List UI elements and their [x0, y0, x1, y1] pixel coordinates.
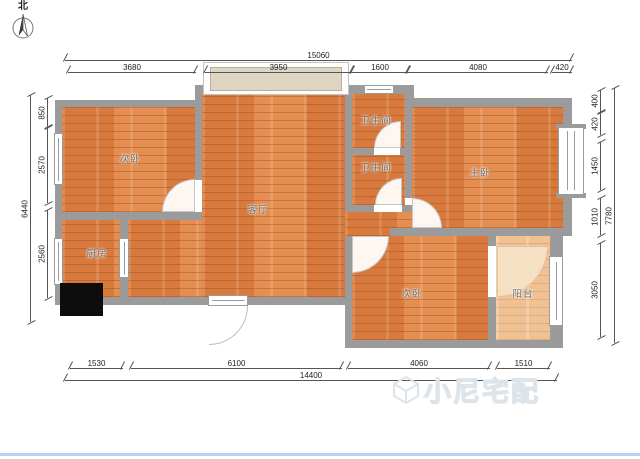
dim-top-seg-3: 1600: [352, 72, 408, 73]
bottom-divider: [0, 453, 640, 456]
dim-right-seg-1: 400: [600, 90, 601, 112]
dim-right-seg-3: 1450: [600, 142, 601, 190]
dim-left-seg-2: 2570: [47, 127, 48, 203]
kitchen-sliding-door: [119, 238, 129, 278]
wall-bath-living-divider: [345, 92, 352, 212]
window-kitchen-left: [54, 238, 63, 285]
entry-door-leaf: [208, 295, 248, 306]
window-bedroom-left: [54, 133, 63, 185]
wall-bath2-bottom-left: [352, 205, 374, 212]
compass-icon: [10, 12, 36, 40]
room-label-living-room: 客厅: [247, 202, 268, 216]
bay-window-master-right: [558, 127, 584, 195]
window-bathroom-top: [364, 85, 394, 94]
wall-master-bottom: [390, 228, 572, 236]
dim-top-total: 15060: [65, 60, 572, 61]
compass: 北: [8, 2, 38, 45]
wall-bath2-bottom-right: [402, 205, 412, 212]
dim-top-seg-4: 4080: [408, 72, 548, 73]
dim-left-total: 6440: [30, 95, 31, 322]
wall-bottom-right: [345, 340, 563, 348]
watermark-text: 小尼宅配: [424, 370, 540, 409]
room-label-master-bedroom: 主卧: [469, 165, 490, 179]
floor-dining: [128, 220, 202, 297]
north-label: 北: [8, 2, 38, 12]
room-label-kitchen: 厨房: [86, 246, 107, 260]
dim-right-total: 7780: [614, 88, 615, 343]
room-label-balcony: 阳台: [512, 286, 533, 300]
watermark: 小尼宅配: [392, 370, 540, 409]
dim-left-seg-1: 850: [47, 98, 48, 127]
wall-topleft-top: [55, 100, 195, 107]
entry-door-swing: [209, 306, 248, 345]
floor-living-room: [202, 92, 345, 297]
room-label-bathroom-top: 卫生间: [360, 113, 392, 127]
dim-left-seg-3: 2560: [47, 210, 48, 298]
dim-top-seg-2: 3950: [205, 72, 352, 73]
wall-bath-right: [405, 92, 412, 198]
watermark-cube-icon: [392, 375, 420, 405]
dim-right-seg-2: 420: [600, 112, 601, 135]
room-label-bedroom-bottom: 次卧: [401, 286, 422, 300]
dim-bottom-seg-3: 4060: [348, 368, 490, 369]
dim-bottom-seg-2: 6100: [131, 368, 342, 369]
floor-plan-page: 北: [0, 0, 640, 459]
dim-right-seg-4: 1010: [600, 198, 601, 235]
wall-topleft-right: [195, 107, 202, 180]
wall-topleft-bottom: [55, 212, 202, 220]
dim-bottom-seg-1: 1530: [70, 368, 123, 369]
dim-bottom-seg-4: 1510: [497, 368, 550, 369]
dim-top-seg-5: 420: [552, 72, 572, 73]
wall-bedroom-balcony-top: [488, 236, 496, 246]
wall-living-bedroom-divider: [345, 236, 352, 348]
wall-kitchen-right-bottom: [120, 278, 128, 305]
wall-balcony-right-top: [550, 236, 563, 256]
wall-bath-divider-right: [400, 148, 412, 155]
structural-column: [60, 283, 103, 316]
wall-master-top: [406, 98, 572, 107]
dim-right-seg-5: 3050: [600, 243, 601, 337]
wall-living-bottom-right: [246, 297, 352, 305]
wall-bath-divider-left: [352, 148, 374, 155]
window-balcony-right: [549, 256, 563, 326]
room-label-bathroom-mid: 卫生间: [360, 160, 392, 174]
room-label-bedroom-top-left: 次卧: [119, 151, 140, 165]
dim-top-seg-1: 3680: [68, 72, 196, 73]
